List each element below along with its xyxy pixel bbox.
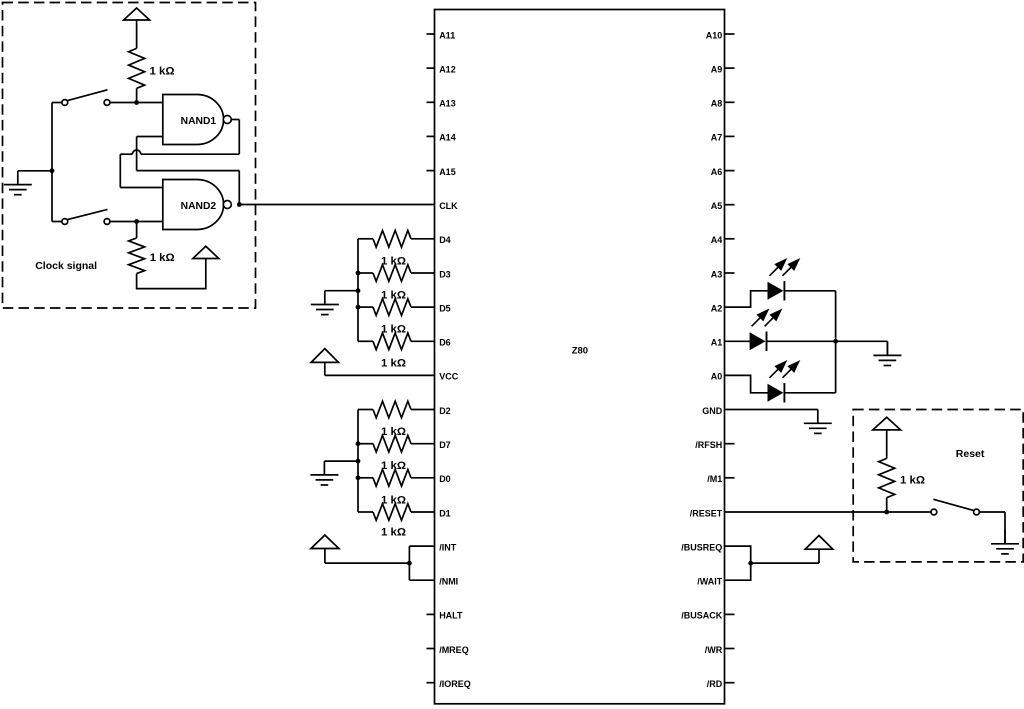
svg-text:/RD: /RD [707,679,723,689]
svg-text:D7: D7 [439,440,451,450]
svg-text:Clock signal: Clock signal [35,260,97,272]
svg-text:D0: D0 [439,474,451,484]
svg-text:A6: A6 [711,167,723,177]
svg-text:1 kΩ: 1 kΩ [150,65,175,77]
svg-text:1 kΩ: 1 kΩ [900,475,925,487]
svg-text:NAND2: NAND2 [181,201,217,212]
svg-text:A15: A15 [439,167,456,177]
svg-text:A3: A3 [711,269,723,279]
svg-text:/RFSH: /RFSH [695,440,722,450]
svg-text:D5: D5 [439,303,451,313]
svg-text:A12: A12 [439,64,456,74]
svg-text:/INT: /INT [439,542,457,552]
svg-text:HALT: HALT [439,611,463,621]
svg-text:/M1: /M1 [707,474,722,484]
svg-text:VCC: VCC [439,372,459,382]
svg-text:/IOREQ: /IOREQ [439,679,471,689]
svg-text:A2: A2 [711,303,723,313]
svg-text:D2: D2 [439,406,451,416]
svg-text:D6: D6 [439,338,451,348]
svg-text:D3: D3 [439,269,451,279]
svg-text:GND: GND [702,406,723,416]
svg-text:A5: A5 [711,201,723,211]
svg-text:/WR: /WR [705,645,723,655]
svg-text:A0: A0 [711,372,723,382]
svg-text:1 kΩ: 1 kΩ [381,527,406,539]
svg-text:A4: A4 [711,235,723,245]
svg-text:1 kΩ: 1 kΩ [381,494,406,506]
svg-text:NAND1: NAND1 [181,116,217,127]
svg-text:Z80: Z80 [572,345,588,356]
svg-text:A7: A7 [711,133,723,143]
svg-text:D4: D4 [439,235,451,245]
svg-text:1 kΩ: 1 kΩ [381,426,406,438]
svg-text:CLK: CLK [439,201,458,211]
svg-text:D1: D1 [439,508,451,518]
svg-text:A9: A9 [711,64,723,74]
svg-text:A11: A11 [439,30,455,40]
svg-text:A14: A14 [439,133,456,143]
svg-text:/BUSREQ: /BUSREQ [681,542,722,552]
svg-text:/RESET: /RESET [690,508,723,518]
svg-text:A1: A1 [711,338,723,348]
svg-text:/MREQ: /MREQ [439,645,469,655]
svg-text:/WAIT: /WAIT [697,577,722,587]
svg-text:1 kΩ: 1 kΩ [150,252,175,264]
svg-text:A8: A8 [711,99,723,109]
svg-text:/BUSACK: /BUSACK [681,611,723,621]
svg-text:1 kΩ: 1 kΩ [381,289,406,301]
svg-text:1 kΩ: 1 kΩ [381,324,406,336]
svg-text:1 kΩ: 1 kΩ [381,255,406,267]
svg-text:1 kΩ: 1 kΩ [381,358,406,370]
svg-text:A13: A13 [439,99,456,109]
svg-text:A10: A10 [706,30,723,40]
svg-text:1 kΩ: 1 kΩ [381,460,406,472]
svg-text:Reset: Reset [956,448,985,460]
svg-text:/NMI: /NMI [439,577,458,587]
